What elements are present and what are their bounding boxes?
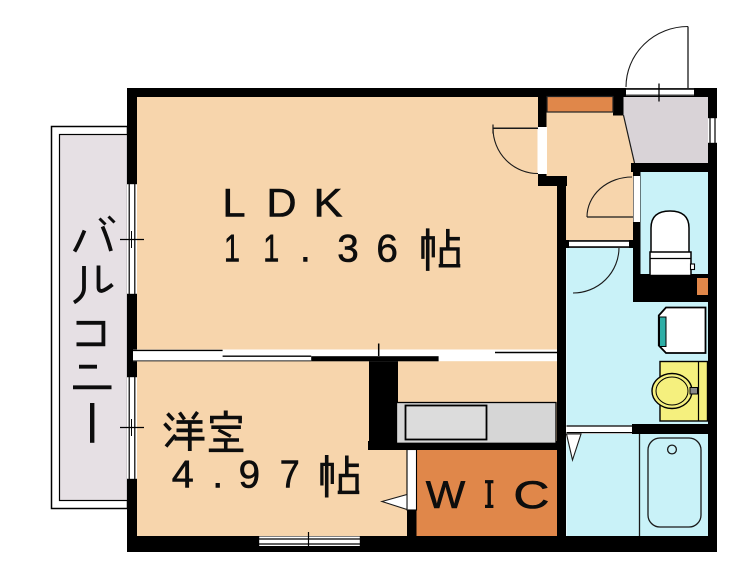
svg-text:1: 1 [263, 227, 279, 270]
svg-text:K: K [314, 182, 343, 226]
svg-text:L: L [223, 182, 246, 226]
svg-text:6: 6 [376, 227, 398, 270]
svg-text:.: . [300, 227, 311, 270]
svg-text:C: C [513, 474, 549, 517]
svg-text:7: 7 [280, 453, 300, 496]
svg-text:4: 4 [172, 453, 194, 496]
svg-text:9: 9 [239, 453, 260, 496]
svg-text:1: 1 [224, 227, 240, 270]
svg-text:.: . [212, 453, 223, 496]
svg-text:D: D [267, 182, 297, 226]
svg-text:3: 3 [337, 227, 359, 270]
svg-text:W: W [426, 474, 466, 517]
